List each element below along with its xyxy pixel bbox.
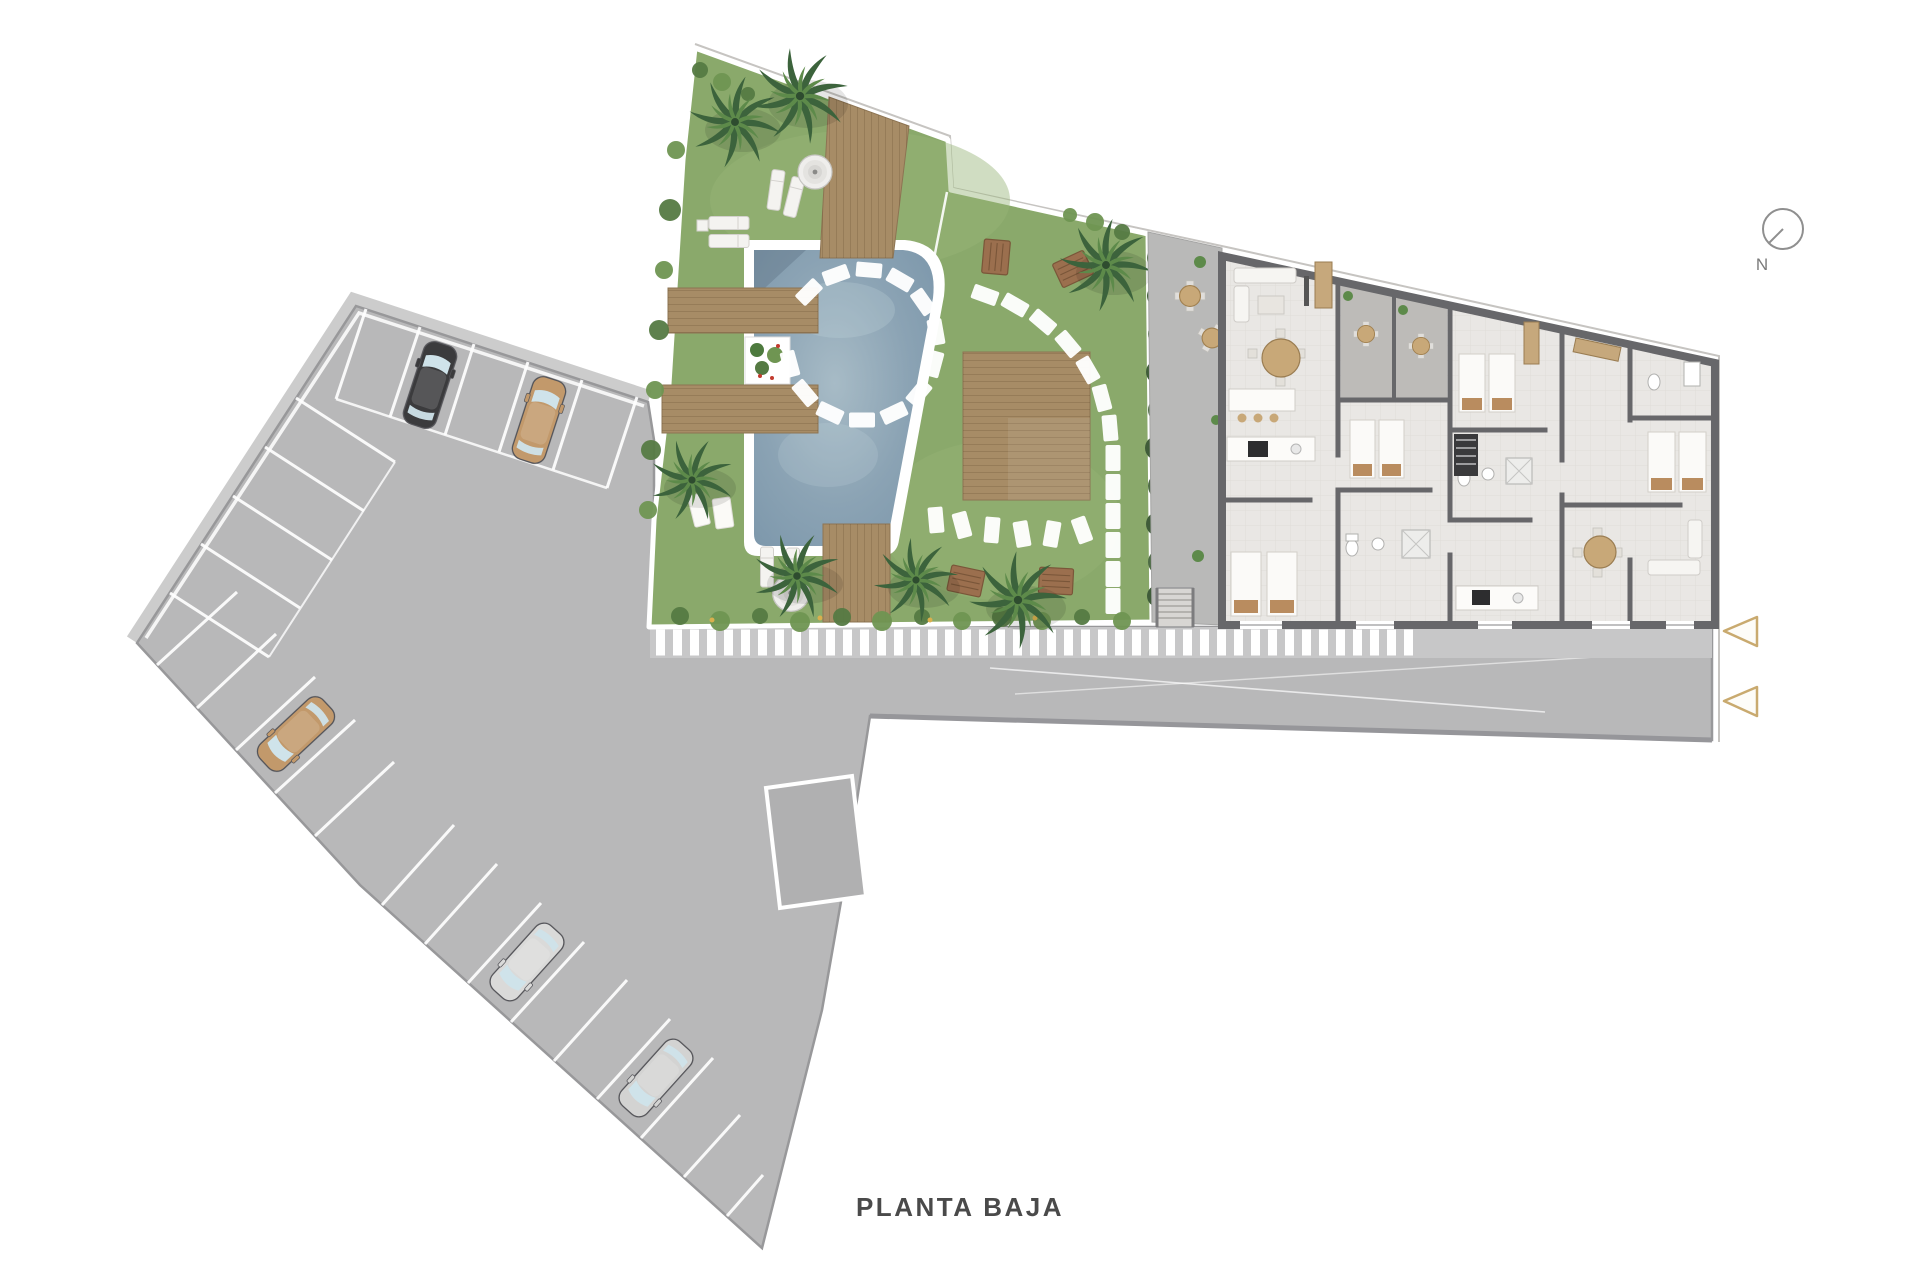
walkway-striped-band bbox=[650, 627, 1712, 658]
entry-arrow-icon-1 bbox=[1724, 617, 1757, 646]
reserved-space-outline bbox=[766, 776, 866, 908]
site-plan-canvas: N bbox=[0, 0, 1920, 1280]
entry-markers bbox=[1724, 617, 1757, 716]
site-plan-page: N PLANTA BAJA bbox=[0, 0, 1920, 1280]
floor-title: PLANTA BAJA bbox=[0, 1192, 1920, 1223]
compass: N bbox=[1756, 209, 1803, 274]
exterior-stairs bbox=[1157, 588, 1193, 627]
north-label: N bbox=[1756, 255, 1768, 274]
garden bbox=[634, 35, 1176, 658]
compass-needle-icon bbox=[1769, 229, 1783, 243]
entry-arrow-icon-2 bbox=[1724, 687, 1757, 716]
building bbox=[1222, 256, 1715, 629]
